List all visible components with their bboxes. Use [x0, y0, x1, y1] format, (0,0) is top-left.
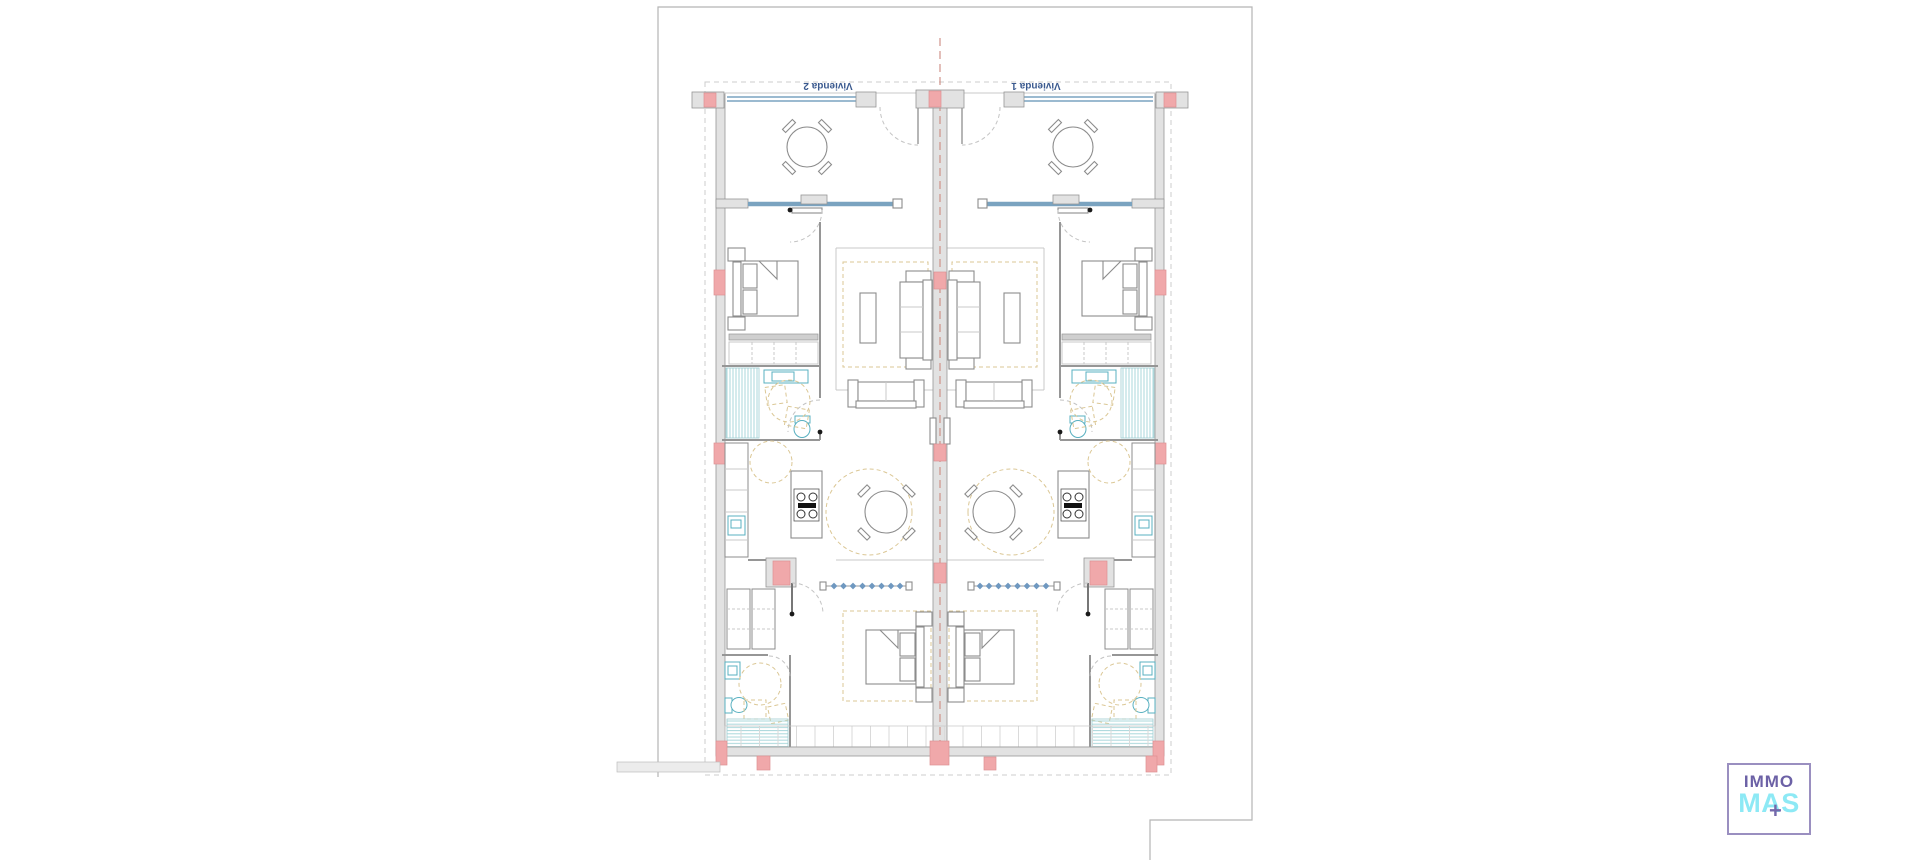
- immomas-logo: IMMO MAS +: [1727, 763, 1811, 835]
- wardrobe: [729, 334, 818, 364]
- unit-left: [692, 92, 934, 755]
- terrace-table: [782, 119, 831, 174]
- unit-right: [946, 92, 1188, 755]
- glass-partition: [820, 582, 912, 590]
- bedroom-1: [728, 248, 798, 330]
- kitchen: [725, 441, 915, 557]
- living-room: [843, 262, 932, 408]
- bedroom-2: [843, 611, 932, 702]
- door-swing: [880, 107, 918, 145]
- dining-table: [865, 491, 907, 533]
- bottom-band: [617, 726, 1164, 772]
- unit-label-right: Vivienda 1: [1011, 80, 1061, 91]
- column: [704, 93, 716, 107]
- sofa: [900, 282, 923, 358]
- bathroom-1: [726, 368, 810, 438]
- logo-plus-icon: +: [1769, 798, 1782, 824]
- tv-stand: [860, 293, 876, 343]
- unit-label-left: Vivienda 2: [803, 80, 853, 91]
- closets: [727, 589, 775, 649]
- floor-plan-canvas: Vivienda 2 Vivienda 1: [0, 0, 1920, 860]
- cooktop: [794, 489, 819, 521]
- page: { "canvas": {"width": 1920, "height": 86…: [0, 0, 1920, 860]
- sidewalk-stub: [617, 762, 720, 772]
